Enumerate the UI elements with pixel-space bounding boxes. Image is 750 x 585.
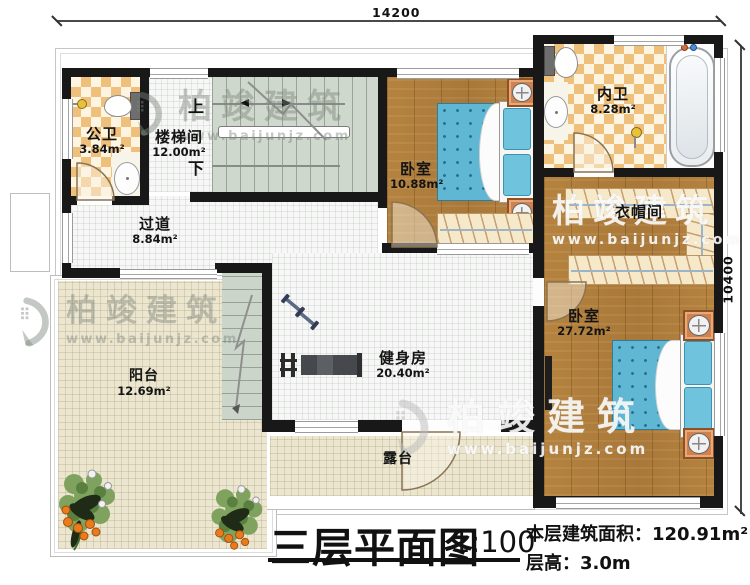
towel-knob-icon [77, 99, 87, 109]
stair-up-label: 上 [188, 93, 204, 117]
floorplan-canvas: 柏竣建筑 www.baijunjz.com 柏竣建筑 www.baijunjz.… [0, 0, 750, 585]
floor-height-text: 层高：3.0m [526, 549, 631, 575]
pillow-icon [503, 108, 531, 150]
tv-icon [545, 356, 552, 410]
window [437, 243, 529, 255]
window [614, 35, 684, 46]
window [397, 68, 519, 79]
door-opening [77, 196, 112, 205]
down-stairs-treads [222, 273, 262, 420]
room-label-public-bath: 公卫3.84m² [74, 126, 130, 156]
window [62, 99, 73, 159]
stair-arrow-left-icon [240, 99, 249, 107]
stair-handrail [218, 126, 350, 138]
dim-right-value: 10400 [721, 250, 736, 310]
stair-down-label: 下 [188, 155, 204, 179]
room-label-balcony: 阳台12.69m² [116, 369, 172, 398]
shower-stem [634, 136, 636, 148]
nightstand-icon [683, 428, 715, 459]
gym-floor [272, 253, 533, 420]
toilet-icon [104, 95, 132, 117]
nightstand-icon [683, 310, 715, 341]
bathtub-icon [669, 47, 715, 167]
room-label-gym: 健身房20.40m² [372, 350, 434, 380]
room-label-cloakroom: 衣帽间 [610, 204, 668, 221]
window [295, 421, 358, 433]
window [62, 213, 73, 263]
sink-icon [114, 162, 140, 195]
wall [62, 268, 120, 278]
shower-knob-icon [631, 127, 642, 138]
dim-line-right [740, 46, 742, 514]
dim-top-value: 14200 [372, 5, 421, 20]
cloak-rack-bottom [568, 255, 716, 285]
wall [544, 168, 722, 177]
dim-line-top [57, 20, 721, 22]
toilet-icon [554, 47, 578, 78]
wall [262, 263, 272, 432]
room-label-hallway: 过道8.84m² [126, 216, 184, 246]
door-opening [402, 421, 501, 431]
room-label-terrace: 露台 [376, 452, 420, 468]
stair-guide-up [212, 103, 345, 105]
window [150, 68, 208, 79]
door-opening [574, 168, 614, 177]
pillow-icon [684, 341, 712, 385]
wall [262, 420, 295, 432]
room-label-bedroom-master: 卧室27.72m² [556, 308, 612, 338]
plan-title: 三层平面图 [270, 514, 480, 574]
wall [533, 35, 544, 253]
window [556, 497, 700, 509]
pillow-icon [684, 387, 712, 431]
wall [190, 192, 382, 202]
stair-guide-down [212, 165, 340, 167]
sink-icon [544, 96, 568, 128]
floor-area-text: 本层建筑面积：120.91m² [526, 520, 748, 546]
window [714, 58, 725, 152]
window [714, 333, 725, 436]
room-label-bedroom-small: 卧室10.88m² [390, 161, 442, 191]
door-opening [533, 278, 544, 306]
cloak-rack-right [686, 213, 716, 259]
plan-scale: 1:100 [452, 525, 536, 559]
stair-arrow-right-icon [282, 99, 291, 107]
side-ledge [10, 193, 50, 272]
faucet-dot-icon [690, 44, 697, 51]
wardrobe-rack [437, 213, 535, 244]
wall [501, 420, 533, 432]
wall [378, 68, 387, 208]
sliding-door [120, 269, 217, 279]
wall [358, 420, 402, 432]
room-label-master-bath: 内卫8.28m² [586, 86, 640, 116]
pillow-icon [503, 154, 531, 196]
